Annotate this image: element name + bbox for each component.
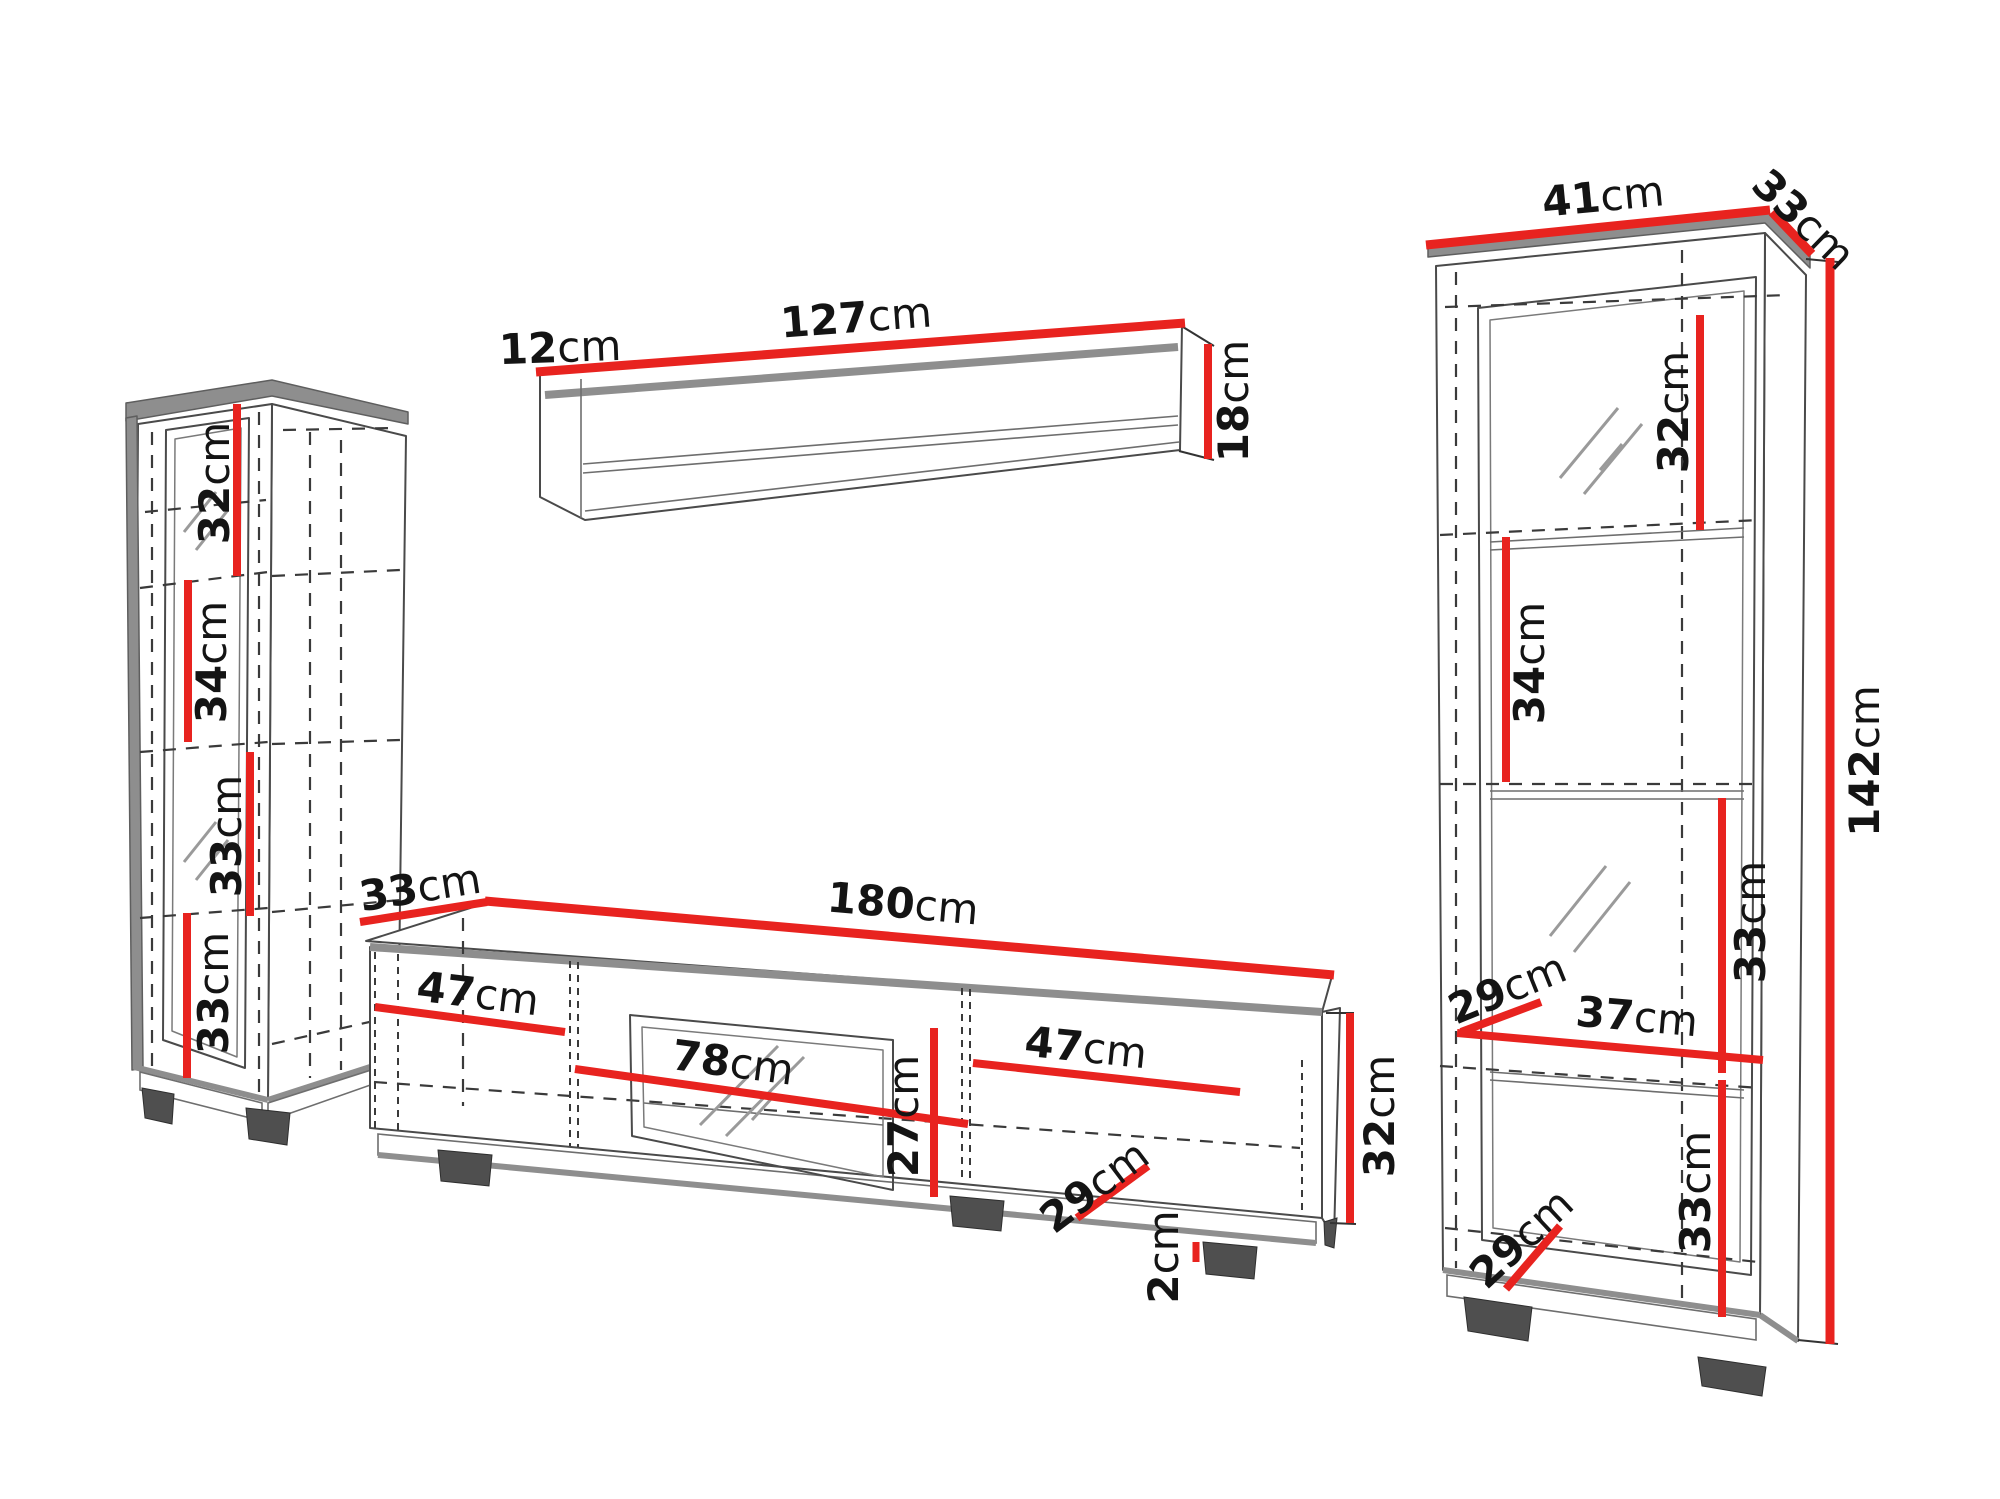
left-cabinet: 32cm 34cm 33cm 33cm: [126, 380, 408, 1145]
dim-label-shelf4: 33cm: [1671, 1131, 1720, 1253]
wall-shelf-structure: [540, 325, 1214, 520]
dim-label-stand-height: 32cm: [1355, 1055, 1404, 1177]
dim-label-compartment4: 33cm: [189, 932, 238, 1054]
dim-label-shelf-width: 127cm: [779, 287, 934, 347]
dim-label-top-width: 41cm: [1540, 166, 1667, 227]
dim-label-plinth: 2cm: [1139, 1210, 1188, 1303]
wall-shelf: 12cm 127cm 18cm: [498, 287, 1258, 520]
diagram-canvas: 41cm 33cm 32cm 34cm 142cm 33cm 29cm 37cm…: [0, 0, 2000, 1499]
dim-label-shelf-depth: 12cm: [498, 320, 622, 373]
left-cabinet-structure: [126, 380, 408, 1145]
dim-label-compartment3: 33cm: [202, 775, 251, 897]
dim-label-height: 142cm: [1840, 685, 1889, 837]
dim-label-compartment1: 32cm: [190, 422, 239, 544]
dim-label-shelf1: 32cm: [1649, 351, 1698, 473]
dim-label-shelf3: 33cm: [1726, 861, 1775, 983]
dim-label-stand-width: 180cm: [825, 872, 980, 934]
right-cabinet: 41cm 33cm 32cm 34cm 142cm 33cm 29cm 37cm…: [1426, 159, 1889, 1396]
right-cabinet-structure: [1428, 209, 1838, 1396]
furniture-dimension-diagram: 41cm 33cm 32cm 34cm 142cm 33cm 29cm 37cm…: [0, 0, 2000, 1499]
dim-label-glass-height: 27cm: [879, 1055, 928, 1177]
dim-label-compartment2: 34cm: [187, 601, 236, 723]
dim-label-shelf2: 34cm: [1505, 602, 1554, 724]
tv-stand: 33cm 180cm 47cm 78cm 27cm 47cm 29cm 2cm …: [356, 853, 1404, 1303]
dim-label-shelf-height: 18cm: [1209, 340, 1258, 462]
